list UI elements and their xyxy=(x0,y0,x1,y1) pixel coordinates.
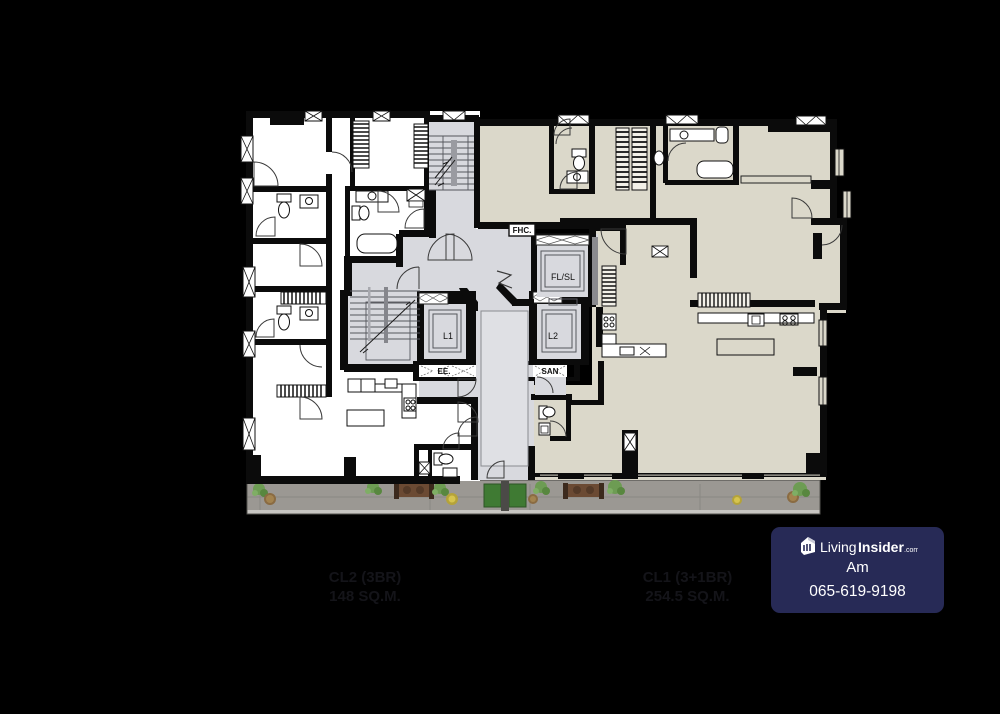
svg-text:EE.: EE. xyxy=(438,367,451,376)
svg-text:Insider: Insider xyxy=(858,539,904,555)
svg-text:FL/SL: FL/SL xyxy=(551,272,575,282)
svg-text:Living: Living xyxy=(820,539,857,555)
svg-text:FHC.: FHC. xyxy=(513,226,532,235)
svg-text:L1: L1 xyxy=(443,331,453,341)
svg-text:.com: .com xyxy=(904,547,918,554)
svg-text:L2: L2 xyxy=(548,331,558,341)
svg-text:SAN: SAN xyxy=(542,367,559,376)
